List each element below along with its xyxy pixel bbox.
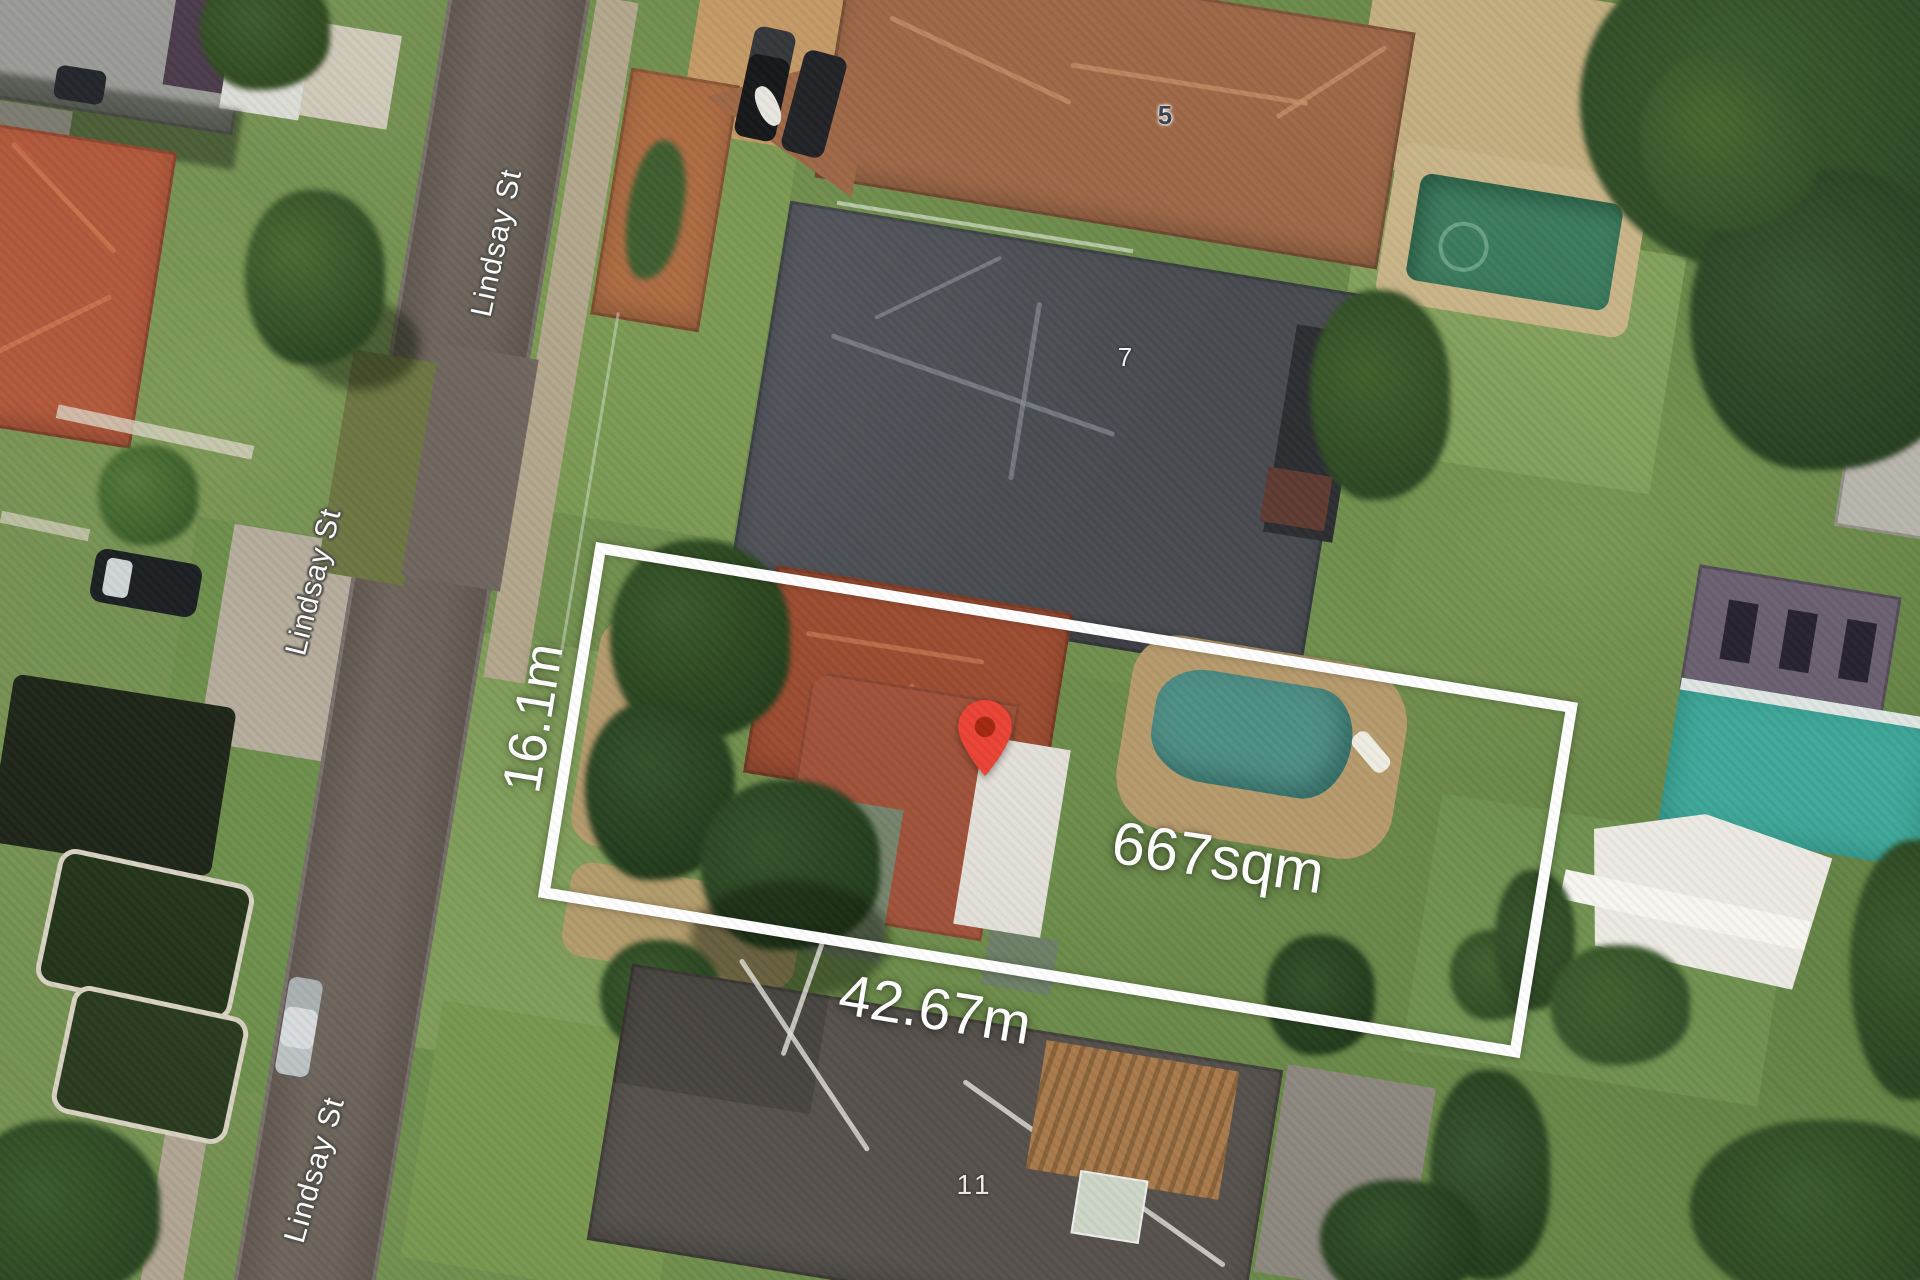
pergola-dark — [0, 673, 237, 876]
car-windshield — [101, 557, 133, 599]
hedge — [1550, 945, 1690, 1065]
house-number-7: 7 — [1118, 344, 1132, 370]
house-number-5: 5 — [1158, 102, 1172, 128]
tree — [1310, 290, 1450, 500]
planter-edge — [0, 511, 90, 541]
satellite-map[interactable]: Lindsay St Lindsay St Lindsay St 16.1m 4… — [0, 0, 1920, 1280]
tree — [1690, 1120, 1920, 1280]
house-roof-terracotta-left — [0, 121, 177, 449]
tree — [1850, 840, 1920, 1100]
pool-house-window — [1838, 619, 1877, 683]
tree-round — [98, 445, 198, 545]
tree — [245, 190, 385, 365]
house-7-tile-patch — [1260, 466, 1333, 531]
house-number-11: 11 — [956, 1171, 993, 1199]
greenhouse — [1070, 1170, 1148, 1244]
tree — [1320, 1180, 1480, 1280]
pool-house-window — [1779, 609, 1818, 673]
pool-house-window — [1719, 600, 1758, 664]
tree — [0, 1120, 160, 1280]
car-dark-driveway — [88, 547, 204, 619]
tree — [1640, 50, 1820, 230]
red-map-pin-icon[interactable] — [958, 700, 1012, 776]
pool-cleaner-hose — [1435, 218, 1492, 275]
